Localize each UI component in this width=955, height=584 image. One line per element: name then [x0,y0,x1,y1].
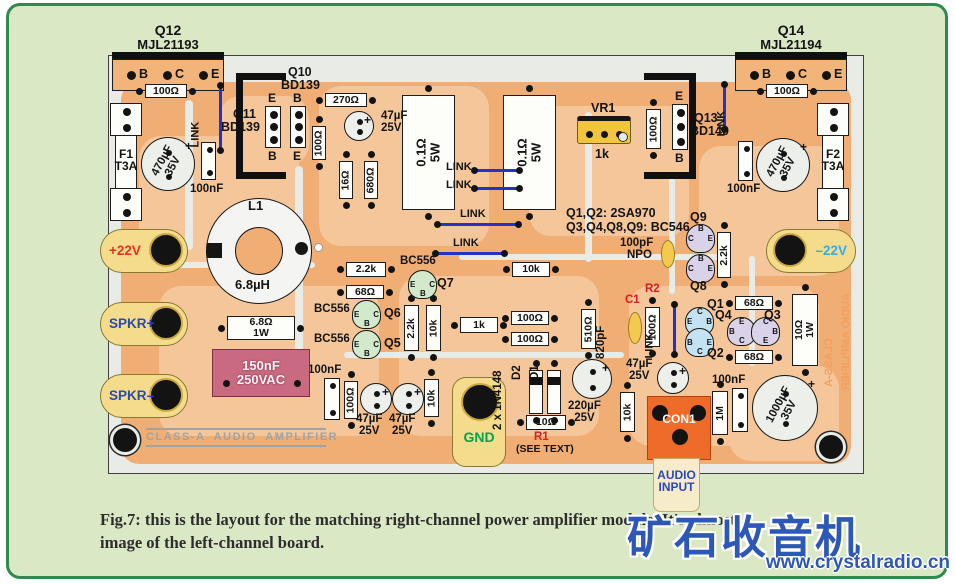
label-q5: Q5 [384,337,401,350]
link-v1-label: LINK [191,122,202,148]
res-2k2-v2-label: 2.2k [719,245,730,265]
terminal-spkr-minus-label: SPKR– [109,389,154,403]
component-layer: BCEBCEQ12MJL21193Q14MJL21194100Ω270Ω100Ω… [0,0,955,584]
q12-header-pin-pad [163,71,172,80]
note-line1: Q1,Q2: 2SA970 [566,207,656,220]
res-100r-topleft-lead [136,88,143,95]
transistor-q9-pin-C: C [688,235,694,243]
label-47uf-a: 47µF 25V [356,414,382,438]
cap-100nf-4-pad [738,393,744,399]
res-16r-lead [343,151,350,158]
label-100nf-3: 100nF [308,365,341,377]
res-2k2-mid-label: 2.2k [356,264,376,275]
res-100r-v4-label: 100Ω [346,387,357,413]
cap-150nf: 150nF 250VAC [212,349,310,397]
res-10k-mid-lead [552,266,559,273]
lead-pad [294,380,301,387]
res-100r-v1-lead [316,116,323,123]
res-0r1-5w-b-label: 0.1Ω 5W [516,138,543,167]
cap-220uf: + [572,359,612,399]
res-68r-q1-label: 68Ω [744,298,764,309]
lead-pad [601,131,608,138]
res-0r1-5w-a-lead [425,213,432,220]
transistor-q6: ECB [352,300,381,329]
label-d2: D2 [512,365,524,380]
transistor-q6-pin-C: C [373,311,379,319]
mirror-text-1: AUDIO AMPLIFIER [841,282,852,402]
q14-header-pin-C: C [798,68,807,81]
lead-pad [295,123,303,131]
label-c1: C1 [625,295,640,307]
fuse-f1-clip [110,103,142,136]
link-h2-label: LINK [446,180,472,191]
link-v3 [673,307,676,352]
link-v2-label: LINK [717,111,728,137]
cap-150nf-label: 150nF 250VAC [237,359,285,386]
res-68r-mid-lead [337,289,344,296]
cap-220uf-polarity: + [602,362,609,374]
connector-con1-pin [672,429,688,445]
res-1m-lead [717,438,724,445]
res-270r: 270Ω [325,93,367,107]
lead-pad [721,81,728,88]
toroid-l1-wire-left [207,243,222,258]
terminal-spkr-plus: SPKR+ [100,302,188,346]
lead-pad [830,124,838,132]
toroid-l1-hole [235,227,283,275]
res-6r8-1w-lead [297,325,304,332]
label-100nf-1: 100nF [190,184,223,196]
res-100r-b-lead [551,336,558,343]
res-100r-topright-label: 100Ω [774,86,800,97]
res-100r-topleft-label: 100Ω [153,86,179,97]
fuse-f2-clip [817,188,849,221]
cap-470uf-right-polarity: + [800,141,807,153]
res-270r-lead [369,97,376,104]
res-2k2-v2-lead [721,222,728,229]
transistor-q7: ECB [408,270,437,299]
trimpot-vr1-value: 1k [595,148,609,161]
res-2k2-v-label: 2.2k [406,318,417,338]
res-10k-mid: 10k [512,262,550,277]
lead-pad [501,250,508,257]
lead-pad [123,124,131,132]
transistor-q5-pin-E: E [354,341,359,349]
q12-header-pin-pad [199,71,208,80]
toroid-l1-pad [314,243,323,252]
watermark-url: www.crystalradio.cn [700,552,950,574]
res-10k-v3-lead [624,435,631,442]
res-10r-r1: 10Ω [526,415,566,430]
cap-100nf-3-pad [330,383,336,389]
res-10k-v3-label: 10k [622,403,633,421]
res-10k-mid-lead [503,266,510,273]
lead-pad [432,250,439,257]
transistor-q4-pin-E: E [739,318,744,326]
res-680r-label: 680Ω [366,167,377,193]
label-q7: Q7 [437,277,454,290]
res-10r-1w: 10Ω 1W [792,294,818,366]
res-510r-lead [585,352,592,359]
res-68r-q1-lead [726,300,733,307]
terminal-minus22v-label: –22V [815,244,847,258]
lead-pad [830,209,838,217]
lead-pad [123,108,131,116]
transistor-q5: ECB [352,330,381,359]
strip-q10 [290,106,306,148]
lead-pad [471,167,478,174]
cap-100nf-4 [732,388,748,432]
mirror-text-2: CLASS-A [824,316,835,408]
lead-pad [217,147,224,154]
res-68r-q2-lead [775,354,782,361]
cap-47uf-a-polarity: + [382,386,389,398]
lead-pad [471,185,478,192]
lead-pad [515,221,522,228]
res-680r-lead [368,202,375,209]
transistor-q9-pin-B: B [698,225,704,233]
silkscreen-title: CLASS-A AUDIO AMPLIFIER [146,428,326,447]
label-820pf: 820pF [596,326,608,359]
res-10r-1w-label: 10Ω 1W [794,320,816,340]
transistor-q4-pin-B: B [729,328,735,336]
diode-d1 [547,370,561,414]
cap-1000uf-polarity: + [808,378,815,390]
res-100r-v1-label: 100Ω [314,130,325,156]
cap-1000uf: 1000µF 35V+ [752,375,818,441]
res-10k-mid-label: 10k [522,264,540,275]
res-100r-b-label: 100Ω [517,334,543,345]
lead-pad [516,167,523,174]
transistor-q7-pin-B: B [420,290,426,298]
res-510r: 510Ω [581,309,596,349]
res-68r-q2-lead [726,354,733,361]
strip-q10-pin-bot: E [293,150,301,162]
res-10k-v3: 10k [620,392,635,432]
transistor-q2-pin-C: C [697,348,703,356]
cap-100nf-4-pad [738,422,744,428]
terminal-gnd-label: GND [453,430,505,445]
res-100r-v1-lead [316,163,323,170]
lead-pad [551,360,558,367]
res-6r8-1w: 6.8Ω 1W [227,316,295,340]
res-16r-label: 16Ω [341,170,352,190]
cap-100nf-1-pad [207,147,213,153]
label-r2: R2 [645,284,660,296]
label-bc556-q5: BC556 [314,334,350,346]
transistor-q6-pin-B: B [364,320,370,328]
res-10k-v2-label: 10k [426,389,437,407]
res-1m-label: 1M [715,406,726,421]
res-68r-mid: 68Ω [346,285,384,299]
res-2k2-mid-lead [388,266,395,273]
res-2k2-v: 2.2k [404,305,419,351]
res-100r-a-label: 100Ω [517,313,543,324]
res-680r: 680Ω [364,161,378,199]
mirror-text-1-text: AUDIO AMPLIFIER [841,282,852,402]
res-100r-v3-lead [649,297,656,304]
lead-pad [830,193,838,201]
link-h2 [477,187,517,190]
label-q14-part: MJL21194 [746,38,836,52]
transistor-q8-pin-C: C [688,265,694,273]
label-see-text: (SEE TEXT) [516,444,574,455]
mirror-text-2-text: CLASS-A [824,316,835,408]
res-100r-v4-lead [348,371,355,378]
res-68r-q2: 68Ω [735,350,773,364]
res-0r1-5w-a: 0.1Ω 5W [402,95,455,210]
res-100r-a: 100Ω [511,311,549,325]
res-100r-topright-lead [810,88,817,95]
label-q8: Q8 [690,280,707,293]
connector-con1: CON1 [647,396,711,460]
cap-100pf [661,240,675,268]
transistor-q3-pin-E: E [763,337,768,345]
diode-d1-band [547,377,560,385]
res-510r-lead [585,299,592,306]
res-10k-v1-lead [430,354,437,361]
lead-pad [671,370,677,376]
res-6r8-1w-lead [218,325,225,332]
transistor-q7-pin-E: E [410,281,415,289]
fuse-f1-label: F1 T3A [114,148,138,173]
res-2k2-mid-lead [337,266,344,273]
fuse-f1-clip [110,188,142,221]
cap-47uf-top-polarity: + [364,114,371,126]
connector-con1-label: CON1 [648,413,710,425]
cap-100nf-3-pad [330,410,336,416]
link-v3-label: LINK [645,333,656,359]
transistor-q1-pin-C: C [697,308,703,316]
q12-header-pin-B: B [139,68,148,81]
label-47uf-c: 47µF 25V [626,359,652,383]
res-680r-lead [368,151,375,158]
res-1k: 1k [460,317,498,333]
res-100r-topright: 100Ω [766,84,808,98]
res-0r1-5w-b-lead [526,85,533,92]
cap-47uf-b: + [392,383,424,415]
lead-pad [217,82,224,89]
res-68r-mid-label: 68Ω [355,287,375,298]
transistor-q5-pin-C: C [373,341,379,349]
label-100nf-4: 100nF [712,375,745,387]
cap-100nf-3 [324,378,340,420]
terminal-plus22v-pad [149,233,183,267]
transistor-q8-pin-B: B [698,255,704,263]
lead-pad [516,185,523,192]
lead-pad [223,380,230,387]
lead-pad [830,108,838,116]
res-2k2-v2: 2.2k [717,232,731,278]
transistor-q7-pin-C: C [429,281,435,289]
terminal-plus22v: +22V [100,229,188,273]
cap-100nf-2 [738,141,753,181]
label-q9: Q9 [690,211,707,224]
terminal-spkr-minus-pad [149,378,183,412]
transistor-q6-pin-E: E [354,311,359,319]
lead-pad [374,391,380,397]
lead-pad [783,391,789,397]
cap-820pf [628,312,642,344]
cap-47uf-top: + [344,111,374,141]
res-2k2-mid: 2.2k [346,262,386,277]
res-10k-v1: 10k [426,305,441,351]
link-h1-label: LINK [446,162,472,173]
res-1m: 1M [712,391,728,435]
transistor-q1-pin-B: B [706,318,712,326]
res-1k-lead [500,322,507,329]
cap-47uf-c-polarity: + [679,365,686,377]
cap-100nf-1 [201,142,216,180]
res-510r-label: 510Ω [583,316,594,342]
trimpot-vr1 [577,116,631,144]
link-h4-label: LINK [453,238,479,249]
terminal-spkr-minus: SPKR– [100,374,188,418]
transistor-q5-pin-B: B [364,350,370,358]
res-16r: 16Ω [339,161,353,199]
res-1k-label: 1k [473,320,485,331]
mounting-hole-right [819,435,843,459]
lead-pad [533,417,540,424]
transistor-q2-pin-B: B [687,339,693,347]
res-1k-lead [451,322,458,329]
lead-pad [166,174,172,180]
terminal-minus22v-pad [773,233,807,267]
lead-pad [671,382,677,388]
connector-con1-tab-label: AUDIO INPUT [654,469,699,494]
q12-header-pin-E: E [211,68,219,81]
lead-pad [434,221,441,228]
transistor-q1-pin-E: E [687,318,692,326]
lead-pad [406,403,412,409]
res-0r1-5w-b-lead [526,213,533,220]
cap-470uf-right: 470µF 35V+ [756,138,810,192]
q14-header-bar [735,52,847,59]
res-10k-v3-lead [624,382,631,389]
label-q12: Q12 [123,23,213,38]
res-100r-topleft-lead [189,88,196,95]
res-100r-topright-lead [757,88,764,95]
q12-header-pin-C: C [175,68,184,81]
label-100nf-2: 100nF [727,184,760,196]
transistor-q8-pin-E: E [708,265,713,273]
label-l1: L1 [248,199,263,213]
cap-100nf-1-pad [207,170,213,176]
lead-pad [671,301,678,308]
res-270r-lead [316,97,323,104]
terminal-spkr-plus-label: SPKR+ [109,317,154,331]
res-68r-q2-label: 68Ω [744,352,764,363]
label-q10-part: BD139 [281,79,320,92]
res-0r1-5w-a-label: 0.1Ω 5W [415,138,442,167]
res-0r1-5w-b: 0.1Ω 5W [503,95,556,210]
label-npo: NPO [627,250,652,262]
lead-pad [123,193,131,201]
terminal-plus22v-label: +22V [109,244,141,258]
silkscreen-title-text: CLASS-A AUDIO AMPLIFIER [146,432,326,443]
toroid-l1-wire-right [295,242,308,255]
label-q12-part: MJL21193 [123,38,213,52]
transistor-q4-pin-C: C [739,337,745,345]
lead-pad [357,129,363,135]
fuse-f2-label: F2 T3A [821,148,845,173]
q14-header-pin-pad [822,71,831,80]
cap-100nf-2-pad [744,171,750,177]
label-q3: Q3 [764,309,781,322]
label-q4: Q4 [715,309,732,322]
res-100r-a-lead [502,315,509,322]
lead-pad [671,351,678,358]
fuse-f2-clip [817,103,849,136]
link-h1 [477,169,517,172]
q12-header-bar [112,52,224,59]
cap-47uf-b-polarity: + [414,386,421,398]
lead-pad [295,136,303,144]
q14-header-pin-E: E [834,68,842,81]
mounting-hole-left [113,428,137,452]
res-16r-lead [343,202,350,209]
res-100r-a-lead [551,315,558,322]
lead-pad [406,391,412,397]
cap-100nf-2-pad [744,146,750,152]
cap-47uf-c: + [657,362,689,394]
lead-pad [374,403,380,409]
res-10r-r1-lead [517,419,524,426]
label-q14: Q14 [746,23,836,38]
label-diodes: 2 x 1N4148 [493,370,505,429]
label-47uf-b: 47µF 25V [389,414,415,438]
res-6r8-1w-label: 6.8Ω 1W [249,317,272,339]
transistor-q3-pin-B: B [772,328,778,336]
link-h3-label: LINK [460,209,486,220]
label-d1: D1 [530,365,542,380]
q14-header-pin-pad [750,71,759,80]
trimpot-vr1-screw [618,132,628,142]
terminal-minus22v: –22V [766,229,856,273]
lead-pad [590,369,596,375]
res-100r-v1: 100Ω [312,126,326,160]
lead-pad [357,119,363,125]
res-100r-b: 100Ω [511,332,549,346]
res-10r-1w-lead [802,369,809,376]
strip-q10-pin-top: B [293,92,302,104]
heatsink-bracket-left [236,73,286,179]
figure-scene: BCEBCEQ12MJL21193Q14MJL21194100Ω270Ω100Ω… [0,0,955,584]
lead-pad [586,131,593,138]
lead-pad [781,175,787,181]
res-68r-q1-lead [775,300,782,307]
res-10k-v2-lead [428,369,435,376]
res-270r-label: 270Ω [333,95,359,106]
label-q2: Q2 [707,347,724,360]
cap-47uf-a: + [360,383,392,415]
label-bc556-q7: BC556 [400,256,436,268]
transistor-q9: CBE [686,224,715,253]
heatsink-bracket-right [644,73,696,179]
q14-header-pin-B: B [762,68,771,81]
trimpot-vr1-label: VR1 [591,102,615,115]
link-v1 [219,88,222,148]
res-10r-1w-lead [802,284,809,291]
res-2k2-v2-lead [721,281,728,288]
note-line2: Q3,Q4,Q8,Q9: BC546 [566,221,690,234]
lead-pad [123,209,131,217]
label-q6: Q6 [384,307,401,320]
res-68r-mid-lead [386,289,393,296]
link-h4 [438,252,502,255]
lead-pad [551,417,558,424]
label-l1-value: 6.8µH [235,278,270,292]
